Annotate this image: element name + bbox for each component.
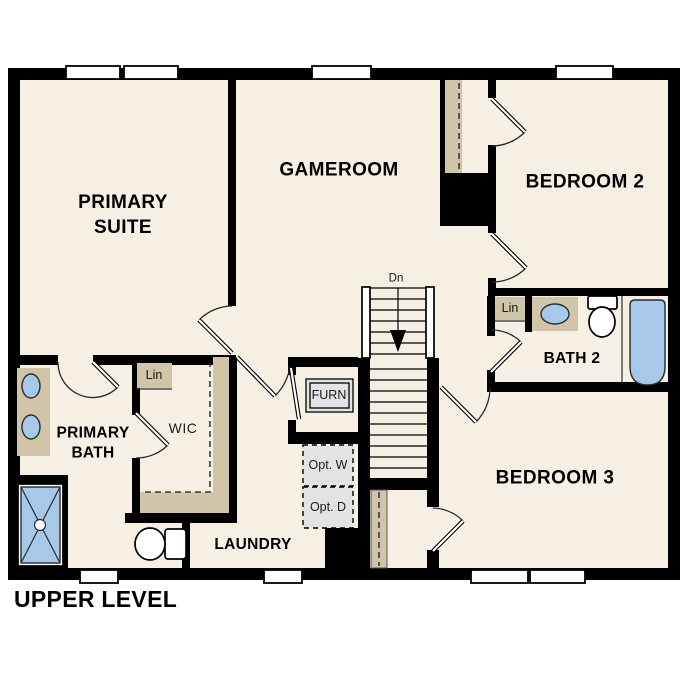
furnace-label: FURN xyxy=(312,387,347,404)
room-label-laundry: LAUNDRY xyxy=(214,535,291,555)
toilet-icon xyxy=(588,296,617,337)
window-icon xyxy=(80,570,118,583)
stair-rail-right xyxy=(426,287,434,358)
linen-label: Lin xyxy=(502,300,519,317)
floor-plan: PRIMARY SUITE GAMEROOM BEDROOM 2 BEDROOM… xyxy=(0,0,687,687)
room-label-bath2: BATH 2 xyxy=(544,349,601,369)
window-icon xyxy=(530,570,585,583)
linen-label: Lin xyxy=(146,367,163,384)
sink-icon xyxy=(22,415,40,439)
wic-shelf-right xyxy=(213,357,229,513)
chimney-chase-block xyxy=(440,173,496,226)
window-icon xyxy=(471,570,528,583)
sink-icon xyxy=(541,304,569,324)
page-title: UPPER LEVEL xyxy=(14,586,177,613)
room-label-bedroom2: BEDROOM 2 xyxy=(526,169,645,194)
window-icon xyxy=(556,66,613,79)
stairs-down-label: Dn xyxy=(389,271,404,286)
room-label-gameroom: GAMEROOM xyxy=(279,157,398,182)
stair-rail-left xyxy=(362,287,370,358)
window-icon xyxy=(312,66,371,79)
optional-dryer-label: Opt. D xyxy=(307,499,349,516)
sink-icon xyxy=(22,374,40,398)
room-label-primary-suite: PRIMARY SUITE xyxy=(63,190,183,240)
chase-block xyxy=(325,528,368,568)
floor-plan-drawing xyxy=(0,0,687,687)
window-icon xyxy=(124,66,178,79)
window-icon xyxy=(66,66,120,79)
toilet-icon xyxy=(135,528,186,560)
wic-shelf-bottom xyxy=(140,492,214,513)
room-label-primary-bath: PRIMARY BATH xyxy=(50,424,136,465)
optional-washer-label: Opt. W xyxy=(307,457,349,474)
room-label-wic: WIC xyxy=(169,419,198,437)
room-label-bedroom3: BEDROOM 3 xyxy=(496,465,615,490)
shower-icon xyxy=(13,478,68,570)
window-icon xyxy=(264,570,302,583)
